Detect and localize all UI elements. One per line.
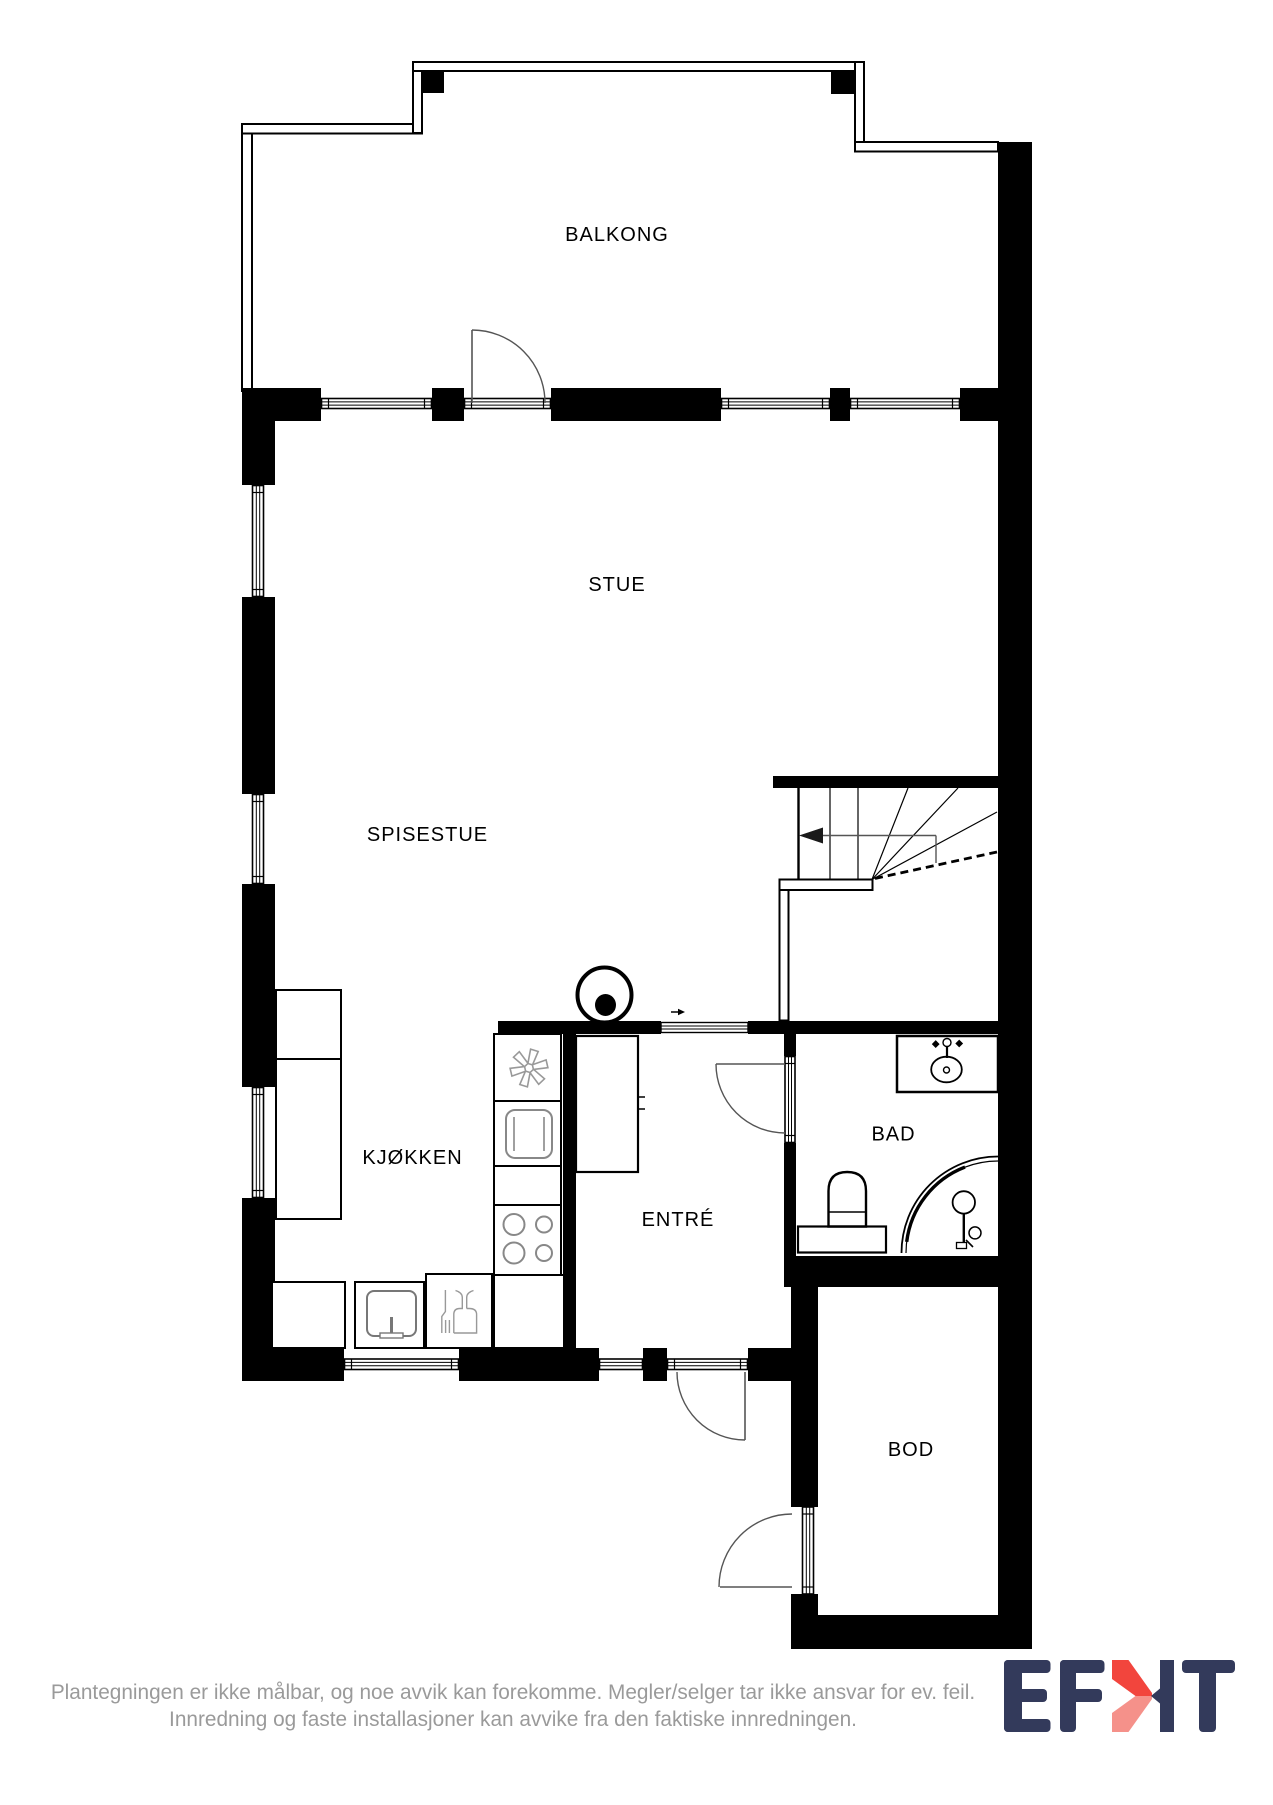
svg-text:Innredning og faste installasj: Innredning og faste installasjoner kan a… [169, 1708, 857, 1731]
svg-text:BOD: BOD [888, 1439, 934, 1461]
svg-text:BAD: BAD [871, 1124, 915, 1146]
svg-text:ENTRÉ: ENTRÉ [642, 1208, 715, 1231]
svg-text:KJØKKEN: KJØKKEN [362, 1147, 462, 1169]
svg-text:Plantegningen er ikke målbar,: Plantegningen er ikke målbar, og noe avv… [51, 1681, 975, 1704]
svg-text:BALKONG: BALKONG [565, 224, 669, 246]
svg-text:STUE: STUE [588, 574, 645, 596]
svg-text:SPISESTUE: SPISESTUE [367, 824, 488, 846]
